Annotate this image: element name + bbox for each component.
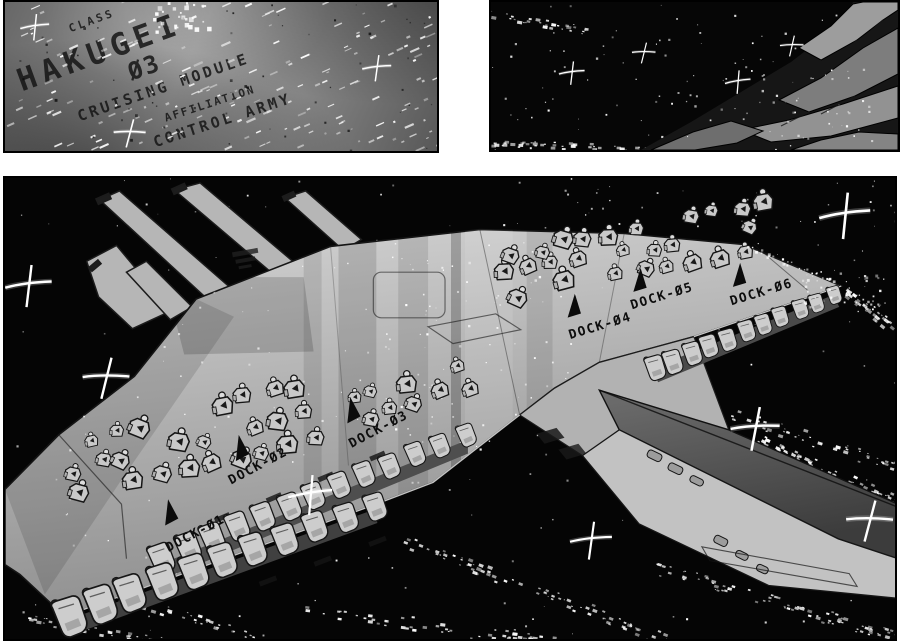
streak-dot <box>590 143 594 146</box>
star-dot <box>263 635 265 637</box>
star-dot <box>785 33 787 35</box>
streak-dot <box>868 634 870 636</box>
star-dot <box>796 100 798 102</box>
star-dot <box>250 571 251 572</box>
streak-dash <box>414 107 418 110</box>
streak-dash <box>245 3 253 8</box>
streak-dash <box>40 11 45 15</box>
dark-speck <box>226 10 227 11</box>
star-dot <box>540 527 541 528</box>
dark-speck <box>83 27 86 30</box>
streak-dot <box>856 628 858 630</box>
streak-dash <box>427 45 430 47</box>
star-dot <box>870 201 872 203</box>
streak-dash <box>21 33 28 37</box>
streak-dot <box>99 634 104 637</box>
streak-dash <box>46 39 52 43</box>
star-dot <box>837 183 838 184</box>
mecha-unit <box>572 226 592 247</box>
star-dot <box>683 191 684 192</box>
star-dot <box>585 214 586 215</box>
star-dot <box>565 190 567 192</box>
star-dot <box>417 374 419 376</box>
edge-glint-dot <box>752 247 753 248</box>
streak-dot <box>369 615 370 616</box>
star-dot <box>23 611 25 613</box>
streak-dash <box>414 53 422 58</box>
star-dot <box>687 136 688 137</box>
streak-dot <box>554 142 556 143</box>
star-dot <box>820 271 821 272</box>
star-dot <box>552 362 554 364</box>
streak-dot <box>505 141 509 144</box>
streak-dot <box>723 585 726 587</box>
star-dot <box>451 403 452 404</box>
star-dot <box>807 291 809 293</box>
star-dot <box>550 50 551 51</box>
streak-dot <box>768 600 770 602</box>
streak-dash <box>315 83 321 87</box>
star-dot <box>570 343 572 345</box>
streak-dash <box>396 47 403 52</box>
streak-dot <box>581 33 582 34</box>
streak-dot <box>821 621 825 624</box>
streak-dot <box>619 618 621 620</box>
star-dot <box>389 339 391 341</box>
star-dot <box>853 135 855 137</box>
dark-speck <box>262 76 264 78</box>
star-dot <box>806 274 807 275</box>
streak-dot <box>826 612 830 615</box>
streak-dot <box>473 564 475 565</box>
dark-speck <box>194 107 196 109</box>
dark-speck <box>424 23 425 24</box>
streak-dash <box>336 132 341 135</box>
streak-dot <box>683 571 685 572</box>
star-dot <box>410 434 411 435</box>
streak-dot <box>885 315 888 318</box>
streak-dot <box>580 607 582 608</box>
star-dot <box>823 351 825 353</box>
star-dot <box>470 460 472 462</box>
star-dot <box>701 43 702 44</box>
streak-dot <box>36 620 42 624</box>
streak-dot <box>49 621 53 624</box>
star-dot <box>564 599 565 600</box>
streak-dot <box>798 435 800 436</box>
streak-dash <box>256 130 261 133</box>
streak-dash <box>67 100 73 104</box>
star-dot <box>830 297 832 299</box>
streak-dot <box>794 436 796 438</box>
star-dot <box>755 215 756 216</box>
star-cross-icon <box>362 54 392 82</box>
star-dot <box>873 295 875 297</box>
star-dot <box>16 445 18 447</box>
star-dot <box>422 498 423 499</box>
star-dot <box>58 252 60 254</box>
star-dot <box>804 301 807 304</box>
star-dot <box>480 457 482 459</box>
star-dot <box>539 276 541 278</box>
streak-dot <box>828 620 831 623</box>
star-dot <box>760 59 762 61</box>
streak-dash <box>336 115 343 119</box>
streak-dash <box>270 71 278 76</box>
streak-dot <box>609 617 614 621</box>
streak-dot <box>880 324 886 330</box>
star-dot <box>546 385 548 387</box>
star-dot <box>824 301 825 302</box>
streak-dot <box>596 149 597 150</box>
star-dot <box>622 520 623 521</box>
edge-glint-dot <box>806 269 808 271</box>
star-dot <box>797 135 799 137</box>
dark-speck <box>431 104 432 105</box>
streak-dot <box>877 311 880 314</box>
star-dot <box>785 102 786 103</box>
star-dot <box>588 522 589 523</box>
star-dot <box>542 87 543 88</box>
star-dot <box>565 558 566 559</box>
streak-dot <box>843 617 849 621</box>
streak-dot <box>890 326 895 331</box>
streak-dot <box>573 26 576 28</box>
streak-dot <box>487 565 493 570</box>
star-dot <box>745 66 747 68</box>
star-dot <box>851 600 852 601</box>
star-dot <box>616 105 618 107</box>
star-dot <box>65 245 66 246</box>
streak-dash <box>376 122 384 127</box>
streak-dash <box>222 2 231 7</box>
streak-dot <box>161 637 163 638</box>
star-dot <box>697 24 698 25</box>
streak-dash <box>90 80 94 83</box>
star-dot <box>503 224 505 226</box>
star-dot <box>532 251 534 253</box>
star-dot <box>678 92 680 94</box>
star-dot <box>525 108 526 109</box>
star-dot <box>148 616 150 618</box>
star-dot <box>492 458 494 460</box>
streak-dot <box>167 609 173 613</box>
streak-dot <box>620 147 625 150</box>
star-dot <box>94 349 95 350</box>
star-cross-icon <box>631 42 656 64</box>
streak-dot <box>252 636 255 638</box>
star-dot <box>532 618 534 620</box>
streak-dash <box>293 126 300 131</box>
streak-dash <box>358 140 361 142</box>
star-dot <box>825 75 826 76</box>
star-dot <box>466 281 468 283</box>
star-dot <box>427 263 428 264</box>
star-dot <box>883 279 884 280</box>
star-dot <box>412 269 413 270</box>
streak-dash <box>388 52 394 56</box>
streak-dot <box>663 633 668 637</box>
dark-speck <box>278 15 280 17</box>
streak-dash <box>410 47 420 53</box>
streak-dot <box>832 623 834 625</box>
streak-dot <box>511 16 514 18</box>
star-dot <box>877 304 879 306</box>
streak-dot <box>882 463 885 465</box>
star-dot <box>872 308 874 310</box>
bright-speck <box>189 17 194 22</box>
star-dot <box>550 6 552 8</box>
streak-dot <box>385 620 389 623</box>
streak-dot <box>492 575 497 579</box>
streak-dot <box>731 415 734 417</box>
star-dot <box>866 479 867 480</box>
star-dot <box>308 394 309 395</box>
star-dot <box>552 519 553 520</box>
star-dot <box>35 604 36 605</box>
star-dot <box>268 310 269 311</box>
star-dot <box>807 138 809 140</box>
dark-speck <box>315 101 317 103</box>
star-dot <box>22 331 24 333</box>
star-dot <box>792 112 794 114</box>
streak-dot <box>344 611 347 613</box>
edge-glint-dot <box>811 273 813 275</box>
edge-glint-dot <box>787 261 788 262</box>
streak-dot <box>53 626 57 629</box>
streak-dash <box>351 128 353 130</box>
streak-dash <box>269 24 272 26</box>
edge-glint-dot <box>755 251 758 254</box>
star-dot <box>874 226 875 227</box>
star-dot <box>178 333 180 335</box>
streak-dash <box>304 123 310 127</box>
streak-dot <box>855 631 857 633</box>
streak-dash <box>387 3 393 7</box>
dark-speck <box>163 126 165 128</box>
bright-speck <box>204 5 206 7</box>
star-dot <box>85 535 86 536</box>
star-dot <box>330 574 332 576</box>
star-dot <box>668 39 670 41</box>
streak-dot <box>422 626 427 629</box>
streak-dash <box>344 45 348 48</box>
star-dot <box>302 266 303 267</box>
dark-speck <box>19 60 21 62</box>
star-dot <box>514 343 515 344</box>
star-dot <box>321 420 323 422</box>
streak-dot <box>885 635 891 639</box>
dark-speck <box>407 57 409 59</box>
streak-dot <box>530 636 533 638</box>
streak-dot <box>614 146 616 147</box>
streak-dot <box>536 592 540 595</box>
tail-fin <box>285 191 362 250</box>
streak-dot <box>635 633 640 637</box>
streak-dot <box>517 21 523 25</box>
streak-dot <box>635 147 639 150</box>
star-dot <box>429 387 430 388</box>
streak-dot <box>461 557 463 558</box>
streak-dot <box>445 628 448 630</box>
streak-dash <box>306 107 310 110</box>
streak-dot <box>852 482 854 484</box>
streak-dot <box>363 617 366 619</box>
streak-dot <box>783 431 785 433</box>
star-dot <box>497 295 499 297</box>
star-dot <box>831 78 833 80</box>
star-dot <box>867 301 869 303</box>
streak-dot <box>356 615 358 617</box>
streak-dot <box>190 615 192 616</box>
bright-speck <box>156 31 159 34</box>
dark-speck <box>409 105 410 106</box>
streak-dash <box>181 46 185 50</box>
star-dot <box>686 101 687 102</box>
star-dot <box>207 253 208 254</box>
manga-page: CLASS HAKUGEI Ø3 CRUISING MODULE AFFILIA… <box>0 0 900 644</box>
asteroid <box>641 2 898 150</box>
edge-glint-dot <box>782 258 784 260</box>
streak-dot <box>592 609 598 613</box>
streak-dot <box>662 565 666 568</box>
star-dot <box>410 264 411 265</box>
star-dot <box>776 226 778 228</box>
streak-dot <box>531 142 533 143</box>
star-dot <box>489 344 490 345</box>
dark-speck <box>356 4 357 5</box>
streak-dash <box>404 123 414 129</box>
bright-speck <box>187 25 189 27</box>
star-dot <box>563 50 565 52</box>
streak-dot <box>475 573 478 576</box>
streak-dot <box>569 142 573 145</box>
star-dot <box>775 149 777 150</box>
star-dot <box>792 82 793 83</box>
star-dot <box>556 456 557 457</box>
streak-dot <box>522 142 525 144</box>
streak-dot <box>520 143 522 144</box>
streak-dot <box>441 631 443 633</box>
star-dot <box>430 423 432 425</box>
star-dot <box>690 94 692 96</box>
streak-dot <box>714 585 719 589</box>
star-dot <box>405 587 407 589</box>
streak-dot <box>426 548 429 551</box>
intro-panel: CLASS HAKUGEI Ø3 CRUISING MODULE AFFILIA… <box>3 0 439 153</box>
streak-dot <box>339 611 341 613</box>
star-dot <box>386 333 388 335</box>
star-dot <box>509 500 511 502</box>
star-dot <box>66 514 67 515</box>
star-dot <box>180 375 181 376</box>
star-dot <box>641 207 643 209</box>
streak-dot <box>794 450 798 453</box>
streak-dot <box>831 611 834 613</box>
streak-dot <box>494 580 498 583</box>
streak-dot <box>845 446 848 448</box>
star-dot <box>790 145 791 146</box>
star-dot <box>466 301 467 302</box>
star-dot <box>257 347 259 349</box>
star-dot <box>756 192 757 193</box>
mecha-unit <box>751 187 775 212</box>
streak-dash <box>429 130 432 133</box>
star-dot <box>871 140 873 142</box>
star-dot <box>641 120 642 121</box>
star-dot <box>858 311 859 312</box>
star-dot <box>380 194 382 196</box>
streak-dot <box>885 495 887 496</box>
streak-dash <box>67 142 74 146</box>
star-dot <box>864 286 865 287</box>
streak-dash <box>51 90 56 94</box>
dark-speck <box>113 80 114 81</box>
dark-speck <box>55 99 58 102</box>
dark-speck <box>348 130 350 132</box>
streak-dash <box>328 104 335 108</box>
dark-speck <box>284 136 286 138</box>
streak-dash <box>99 143 109 149</box>
streak-dot <box>535 18 540 22</box>
star-dot <box>523 242 524 243</box>
star-dot <box>715 589 716 590</box>
star-dot <box>812 276 813 277</box>
star-dot <box>822 20 823 21</box>
star-dot <box>776 95 778 97</box>
streak-dot <box>551 147 556 150</box>
star-dot <box>485 484 487 486</box>
bright-speck <box>193 4 195 6</box>
streak-dot <box>452 554 455 557</box>
streak-dot <box>858 448 861 451</box>
streak-dot <box>145 635 147 637</box>
streak-dot <box>561 29 563 30</box>
streak-dot <box>534 141 536 142</box>
bright-speck <box>186 4 188 6</box>
star-dot <box>864 365 865 366</box>
streak-dot <box>88 629 90 630</box>
streak-dot <box>111 635 113 636</box>
streak-dot <box>684 571 686 572</box>
bright-speck <box>184 6 189 11</box>
streak-dot <box>513 637 518 639</box>
star-dot <box>763 74 765 76</box>
bright-speck <box>202 6 204 8</box>
star-dot <box>182 324 183 325</box>
star-dot <box>571 178 572 179</box>
streak-dot <box>435 550 440 554</box>
streak-dot <box>523 637 527 639</box>
streak-dot <box>835 470 838 472</box>
star-dot <box>401 258 402 259</box>
streak-dot <box>606 621 611 625</box>
star-dot <box>879 290 881 292</box>
streak-dot <box>439 554 441 555</box>
streak-dot <box>518 146 520 148</box>
streak-dot <box>409 548 414 552</box>
star-dot <box>849 287 850 288</box>
star-dot <box>656 44 657 45</box>
star-dot <box>686 618 688 620</box>
star-dot <box>548 110 550 112</box>
streak-dash <box>46 98 52 102</box>
streak-dot <box>546 20 549 22</box>
star-dot <box>495 149 496 150</box>
streak-dot <box>525 22 527 24</box>
star-dot <box>612 36 614 38</box>
streak-dot <box>890 629 894 632</box>
